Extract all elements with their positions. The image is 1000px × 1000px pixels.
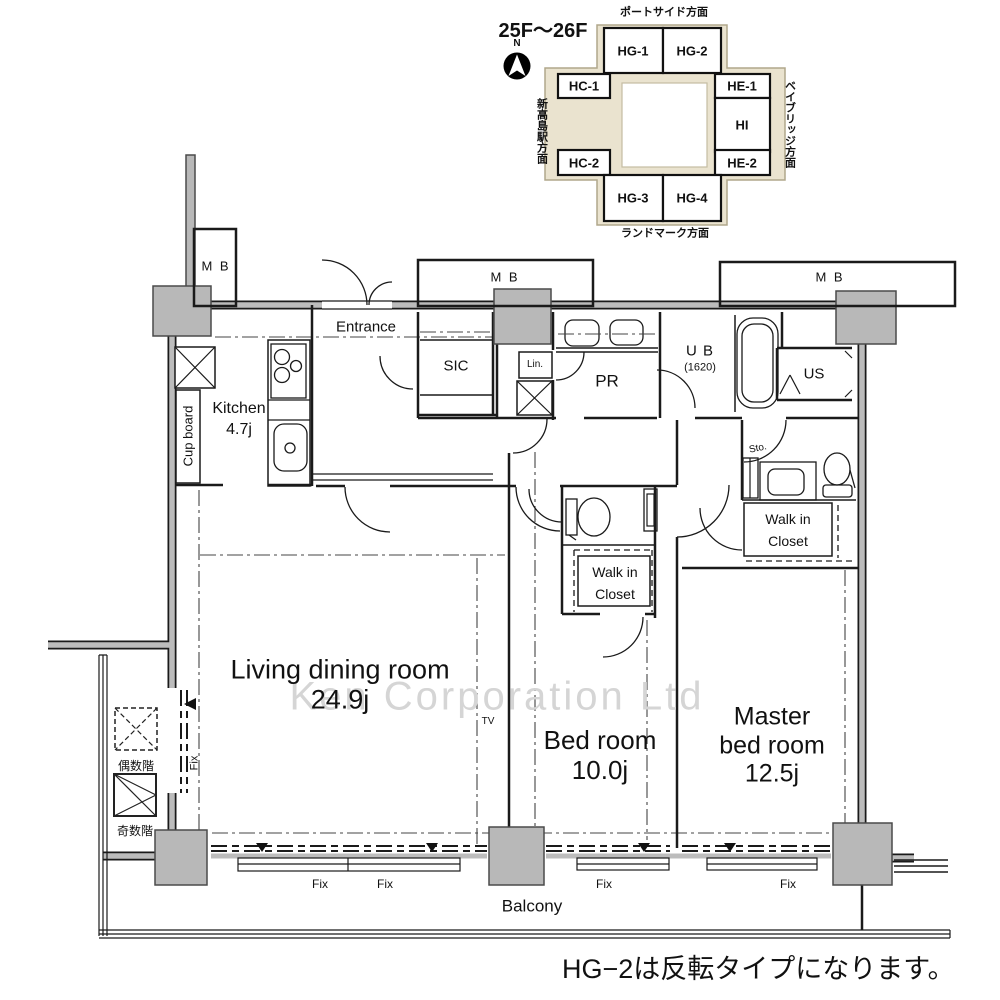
bathtub <box>737 318 778 408</box>
entrance-label: Entrance <box>336 320 396 335</box>
floorplan-drawing: .wallb{stroke:#1a1a1a;stroke-width:9;fil… <box>0 0 1000 1000</box>
unit-hc1: HC-1 <box>569 80 599 93</box>
left-fix-window <box>181 690 196 793</box>
meter-box-label-middle: M B <box>490 271 519 284</box>
utility-label: US <box>804 367 825 382</box>
unit-hg1: HG-1 <box>617 45 648 58</box>
entrance-opening <box>322 299 392 311</box>
master-label-2: bed room <box>719 734 825 759</box>
sic-label: SIC <box>443 359 468 374</box>
unit-hg4: HG-4 <box>676 192 707 205</box>
bedroom-wic <box>574 550 652 612</box>
master-size-label: 12.5j <box>745 762 799 787</box>
elevator-even-box <box>115 708 157 750</box>
fix-label-2: Fix <box>377 878 393 890</box>
bedroom-toilet-fixtures <box>566 489 657 540</box>
direction-baybridge: ベイブリッジ方面 <box>784 80 795 168</box>
bedroom-label: Bed room <box>544 727 657 753</box>
master-label-1: Master <box>734 705 810 730</box>
master-wic-label-1: Walk in <box>765 512 810 526</box>
living-size-label: 24.9j <box>311 687 370 714</box>
elevator-odd-box <box>114 774 156 816</box>
bedroom-wic-label-1: Walk in <box>592 565 637 579</box>
bedroom-size-label: 10.0j <box>572 757 628 783</box>
bath-size-label: (1620) <box>684 363 716 374</box>
reversed-type-note: HG−2は反転タイプになります。 <box>562 947 955 986</box>
living-label: Living dining room <box>230 657 449 684</box>
fix-label-left-window: Fix <box>190 756 201 771</box>
compass-north-label: N <box>513 39 520 49</box>
kitchen-label: Kitchen <box>212 401 265 417</box>
bath-label: U B <box>686 344 714 359</box>
linen-label: Lin. <box>527 360 543 370</box>
meter-box-label-right: M B <box>815 271 844 284</box>
fix-label-4: Fix <box>780 878 796 890</box>
fix-label-3: Fix <box>596 878 612 890</box>
kitchen-size-label: 4.7j <box>226 422 252 438</box>
unit-he1: HE-1 <box>727 80 757 93</box>
unit-hc2: HC-2 <box>569 157 599 170</box>
powder-room-sinks <box>558 320 655 346</box>
fix-label-1: Fix <box>312 878 328 890</box>
unit-he2: HE-2 <box>727 157 757 170</box>
bedroom-wic-label-2: Closet <box>595 587 635 601</box>
elevator-odd-label: 奇数階 <box>117 825 153 837</box>
balcony-label: Balcony <box>502 898 562 915</box>
cupboard-label: Cup board <box>182 406 195 467</box>
hall-shaft-box <box>517 381 552 415</box>
elevator-even-label: 偶数階 <box>118 760 154 772</box>
tv-label: TV <box>482 717 495 727</box>
kitchen-shaft-box <box>175 347 215 388</box>
direction-shintakashima: 新高島駅方面 <box>536 98 547 164</box>
north-compass-icon <box>504 53 531 80</box>
floorplan-page: .wallb{stroke:#1a1a1a;stroke-width:9;fil… <box>0 0 1000 1000</box>
master-wic-label-2: Closet <box>768 534 808 548</box>
master-toilet-fixtures <box>743 453 855 500</box>
powder-room-label: PR <box>595 373 619 390</box>
direction-landmark: ランドマーク方面 <box>621 229 709 240</box>
floor-range-label: 25F〜26F <box>499 21 588 41</box>
kitchen-counter <box>268 340 310 486</box>
unit-hg3: HG-3 <box>617 192 648 205</box>
unit-hg2: HG-2 <box>676 45 707 58</box>
unit-hi: HI <box>736 119 749 132</box>
direction-portside: ポートサイド方面 <box>620 8 708 19</box>
meter-box-label-left: M B <box>201 260 230 273</box>
